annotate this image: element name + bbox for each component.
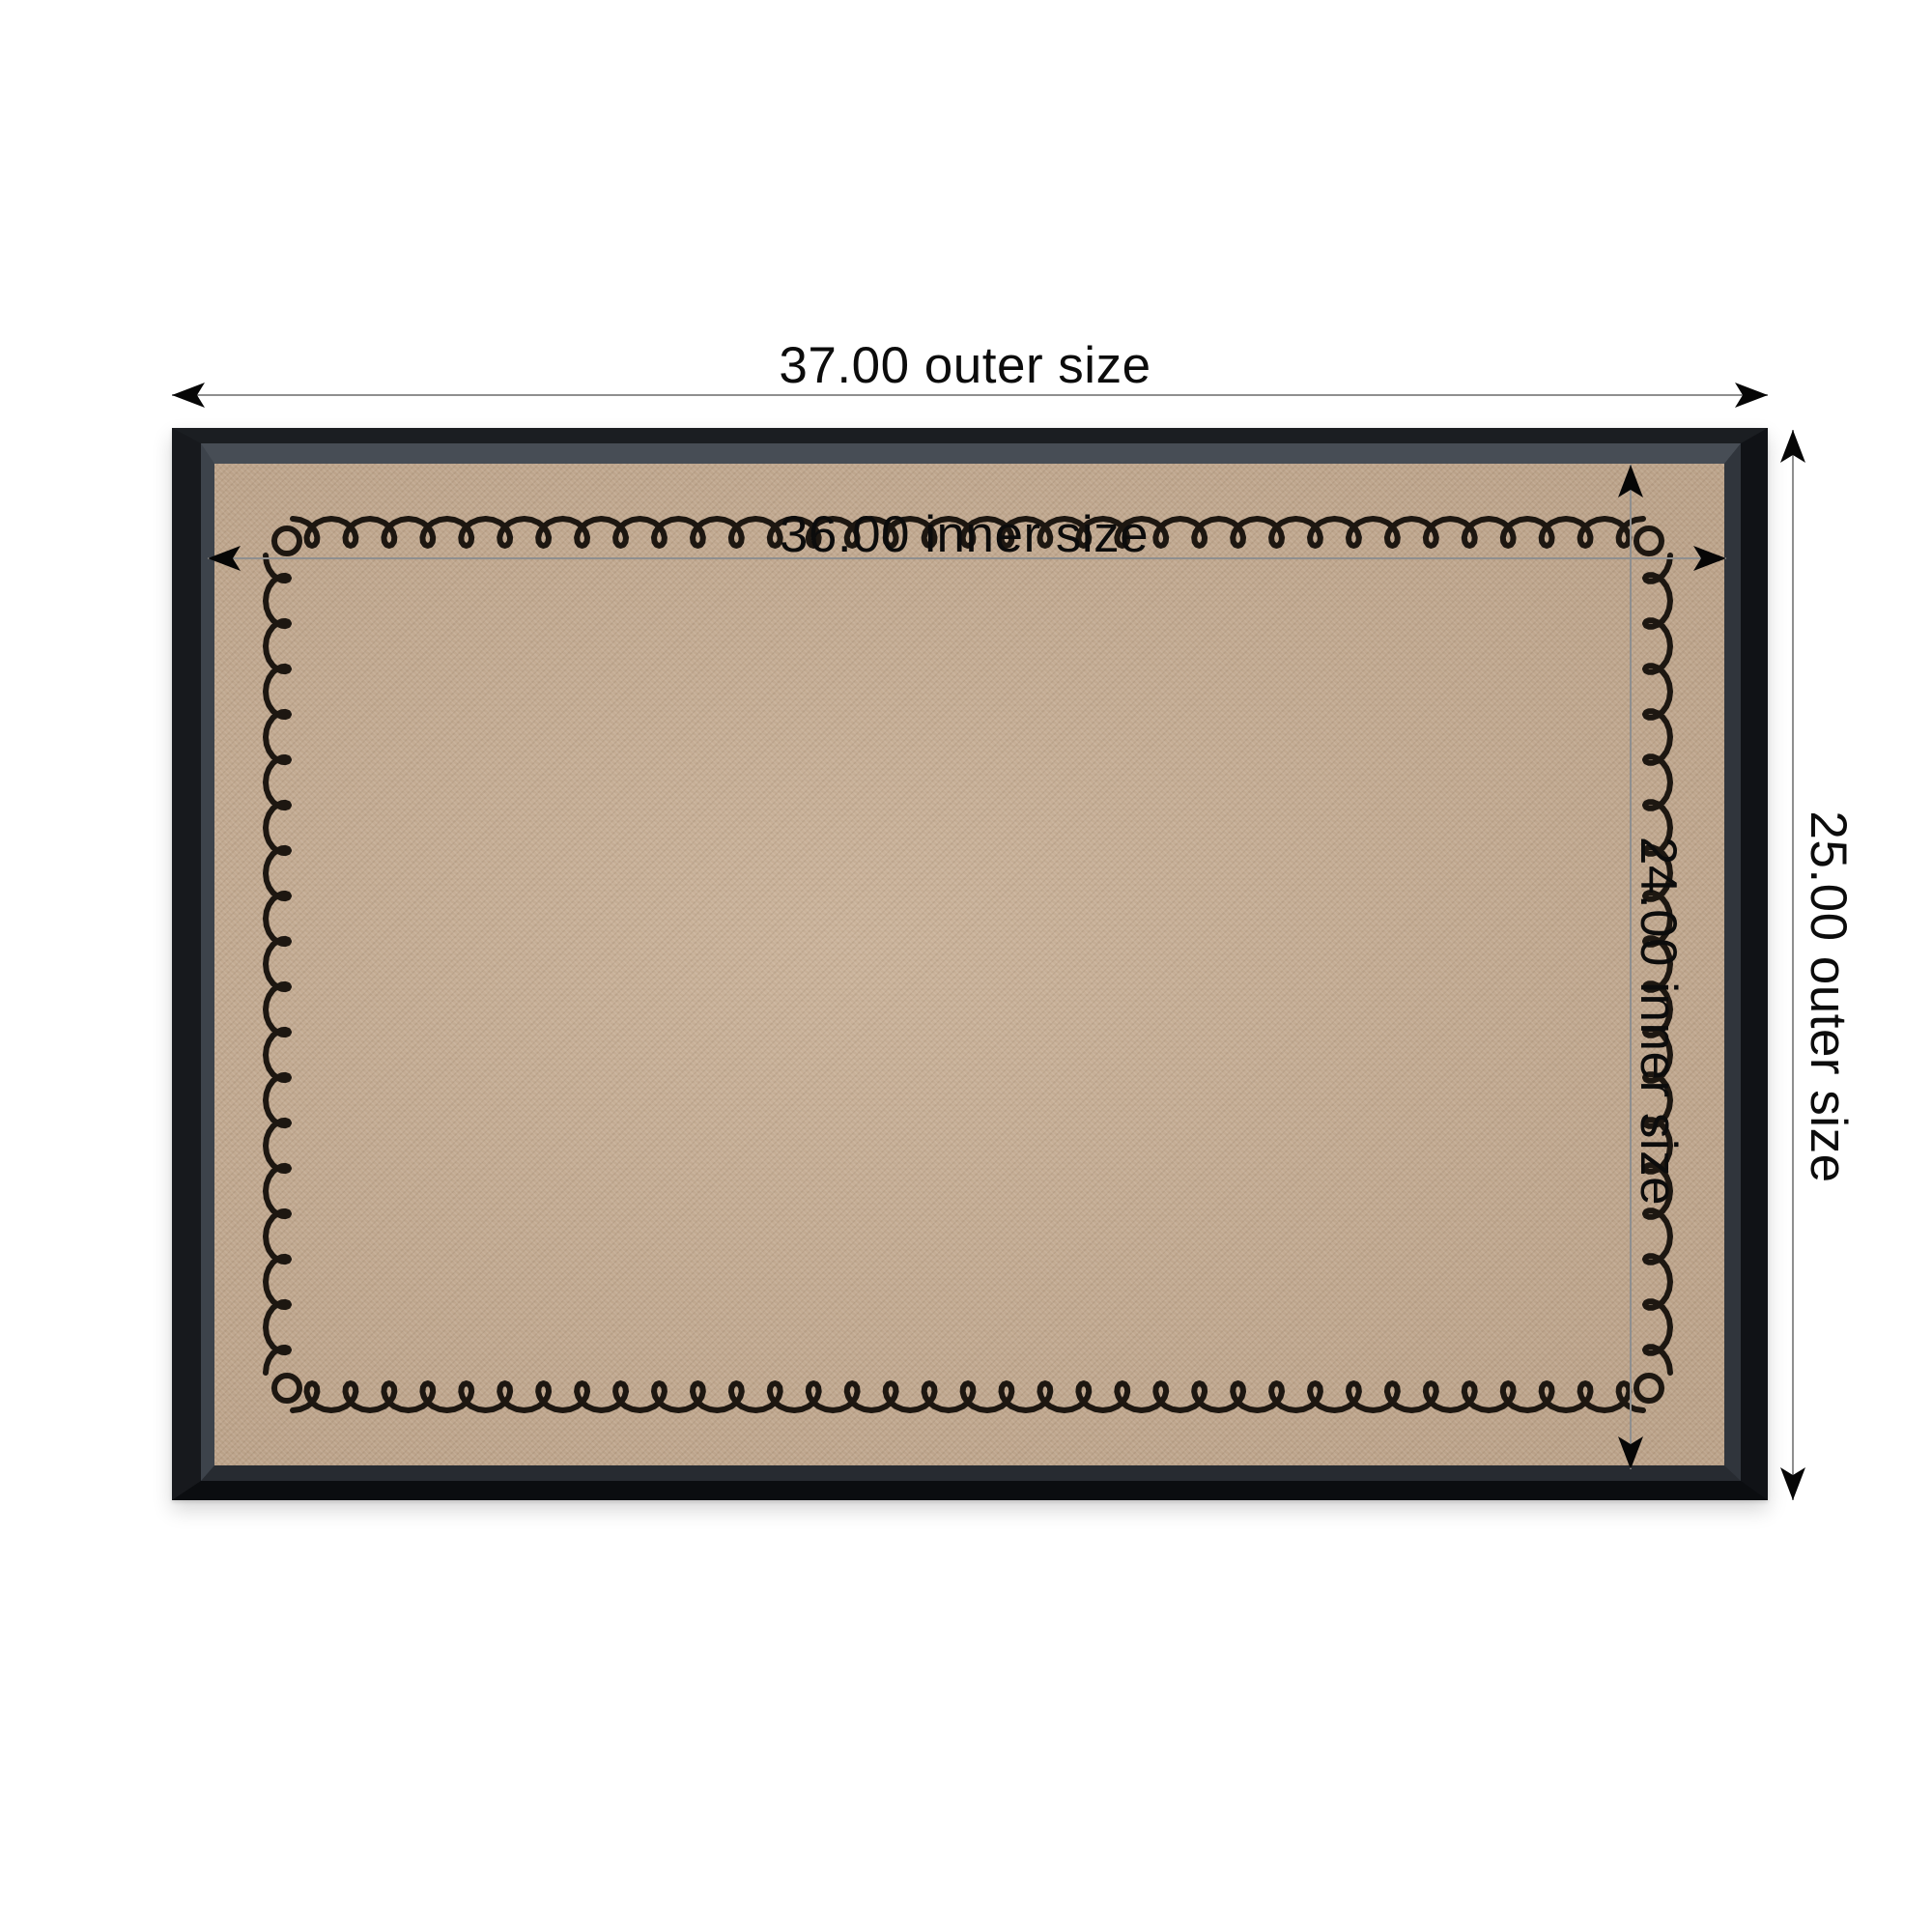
inner-height-label: 24.00 inner size	[1632, 818, 1684, 1224]
arrowhead-right	[1735, 383, 1768, 408]
outer-width-label: 37.00 outer size	[779, 340, 1151, 392]
arrowhead-up	[1780, 430, 1805, 463]
outer-height-label: 25.00 outer size	[1802, 794, 1854, 1200]
frame-bevel	[201, 443, 1741, 1481]
arrowhead-down	[1780, 1467, 1805, 1500]
inner-width-label: 36.00 inner size	[780, 509, 1149, 561]
board-surface	[214, 464, 1724, 1465]
board-frame	[172, 428, 1768, 1500]
dimension-diagram: 37.00 outer size 36.00 inner size 25.00 …	[0, 0, 1932, 1932]
arrowhead-left	[172, 383, 205, 408]
